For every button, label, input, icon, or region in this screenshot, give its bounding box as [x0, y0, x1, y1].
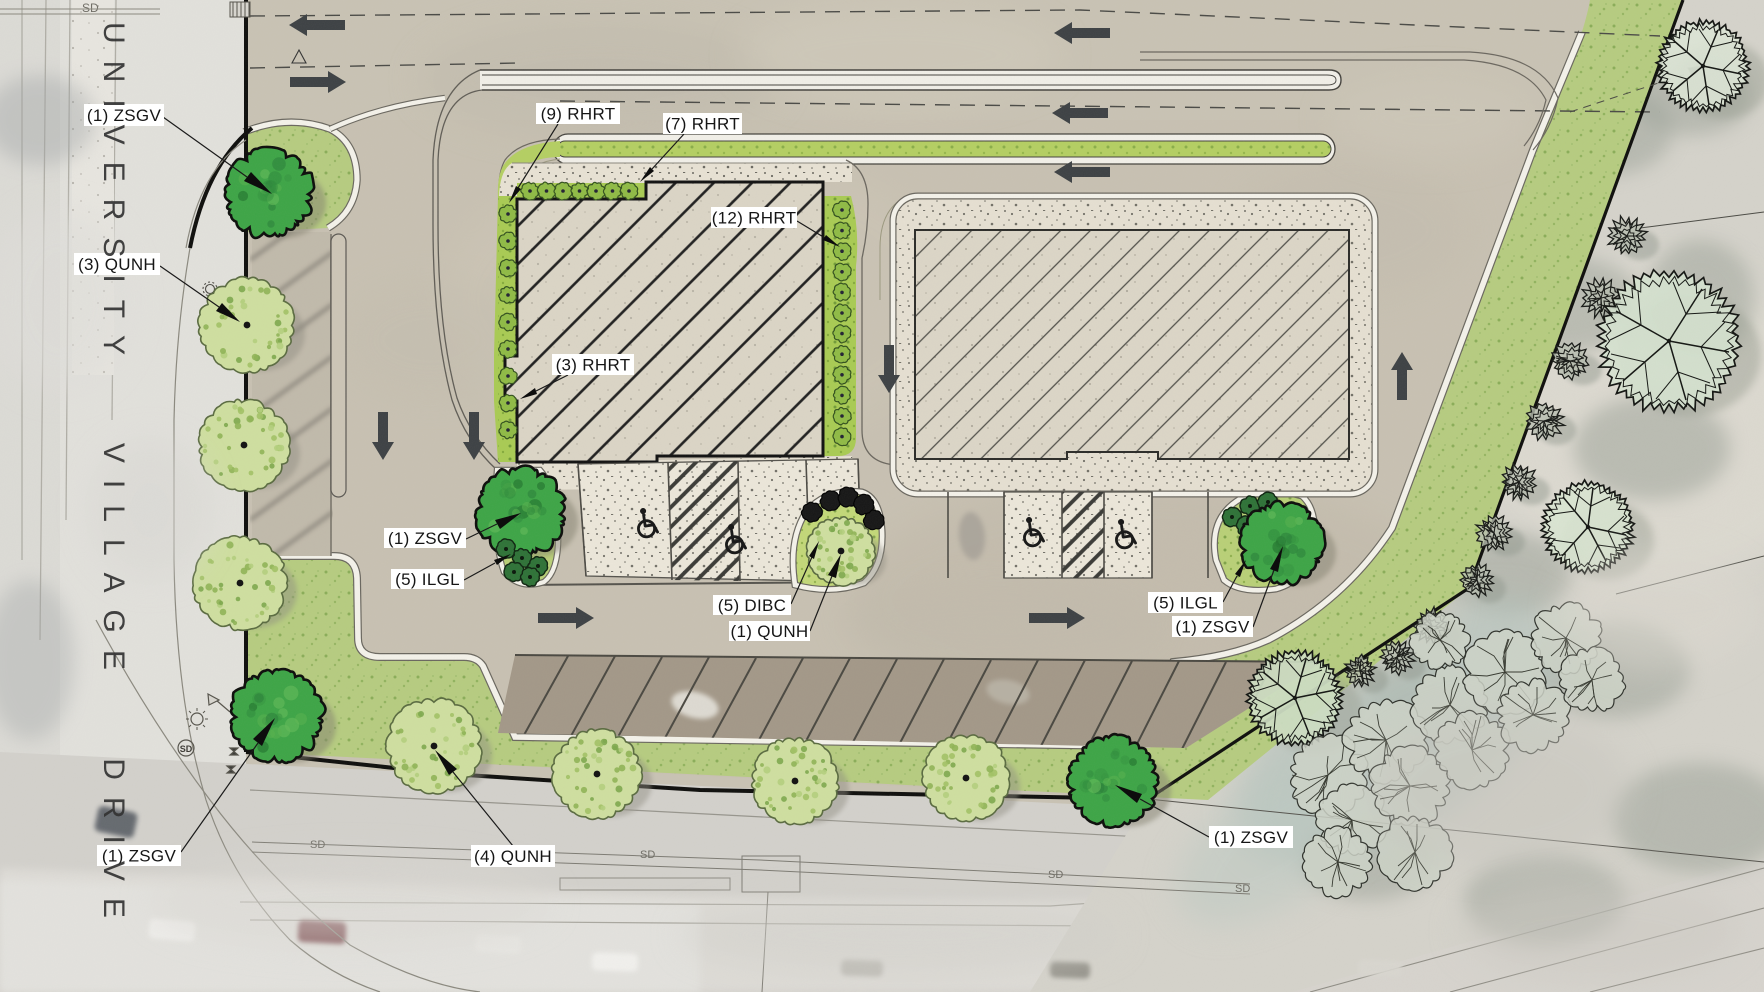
svg-text:(1) ZSGV: (1) ZSGV — [1175, 618, 1250, 637]
svg-text:UNIVERSITY VILLAGE DRIVE: UNIVERSITY VILLAGE DRIVE — [97, 22, 130, 935]
svg-text:(12) RHRT: (12) RHRT — [712, 209, 797, 228]
svg-text:(1) QUNH: (1) QUNH — [731, 622, 809, 641]
svg-text:(5) DIBC: (5) DIBC — [718, 596, 787, 615]
svg-text:(5) ILGL: (5) ILGL — [395, 570, 460, 589]
svg-text:(4) QUNH: (4) QUNH — [474, 847, 552, 866]
svg-text:(1) ZSGV: (1) ZSGV — [1214, 828, 1289, 847]
svg-text:(7) RHRT: (7) RHRT — [665, 115, 740, 134]
svg-text:(3) RHRT: (3) RHRT — [556, 356, 631, 375]
svg-text:(1) ZSGV: (1) ZSGV — [388, 529, 463, 548]
svg-text:(5) ILGL: (5) ILGL — [1153, 594, 1218, 613]
svg-text:(9) RHRT: (9) RHRT — [541, 105, 616, 124]
